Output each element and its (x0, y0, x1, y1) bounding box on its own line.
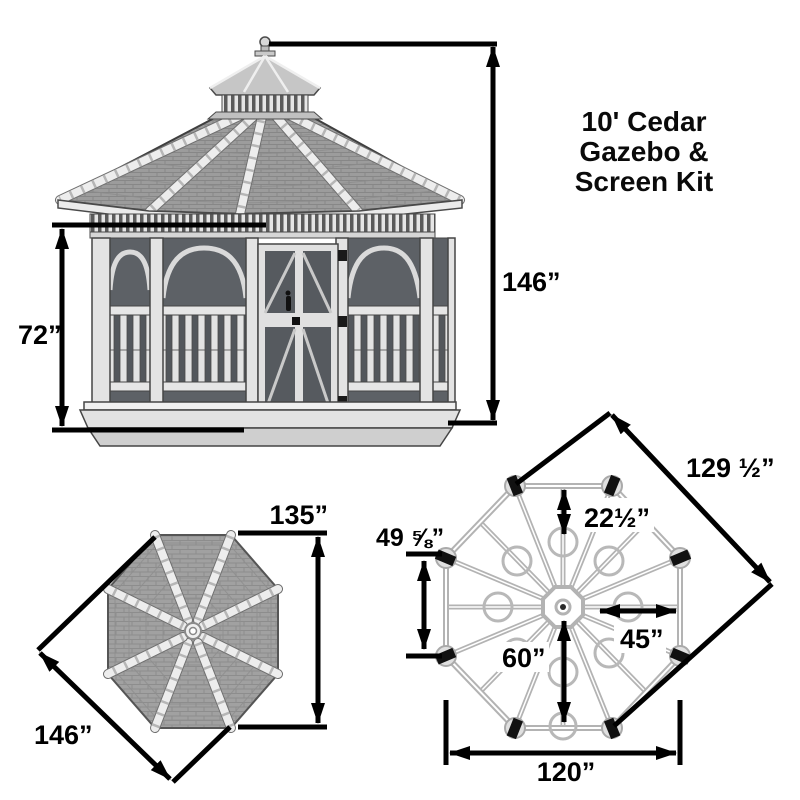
title-line-3: Screen Kit (575, 166, 714, 197)
dimension-label-roof-flat: 135” (269, 500, 328, 530)
cupola-vents (222, 95, 308, 112)
product-title: 10' Cedar Gazebo & Screen Kit (575, 106, 714, 197)
title-line-2: Gazebo & (579, 136, 708, 167)
door-latch (292, 317, 300, 325)
door-hinge (338, 316, 347, 327)
screen-door (250, 244, 347, 427)
dimension-label-center-to-edge-h: 45” (620, 624, 664, 654)
dimension-label-screen-height: 72” (18, 320, 62, 350)
dimension-label-overall-height: 146” (502, 267, 561, 297)
gazebo-spec-diagram: 10' Cedar Gazebo & Screen Kit (0, 0, 800, 800)
door-handle (286, 296, 291, 311)
cupola-base (208, 112, 322, 119)
dimension-label-edge-to-pier: 22½” (584, 503, 650, 533)
dimension-label-floor-width: 120” (537, 757, 596, 787)
door-hinge (338, 250, 347, 261)
deck-base (80, 402, 460, 446)
title-line-1: 10' Cedar (582, 106, 707, 137)
dimension-label-roof-corner: 146” (34, 720, 93, 750)
dimension-label-floor-diagonal: 129 ½” (686, 453, 775, 483)
header-beam (90, 232, 435, 238)
dimension-label-center-to-edge-v: 60” (502, 643, 546, 673)
dimension-label-side-length: 49 ⅝” (376, 524, 444, 552)
